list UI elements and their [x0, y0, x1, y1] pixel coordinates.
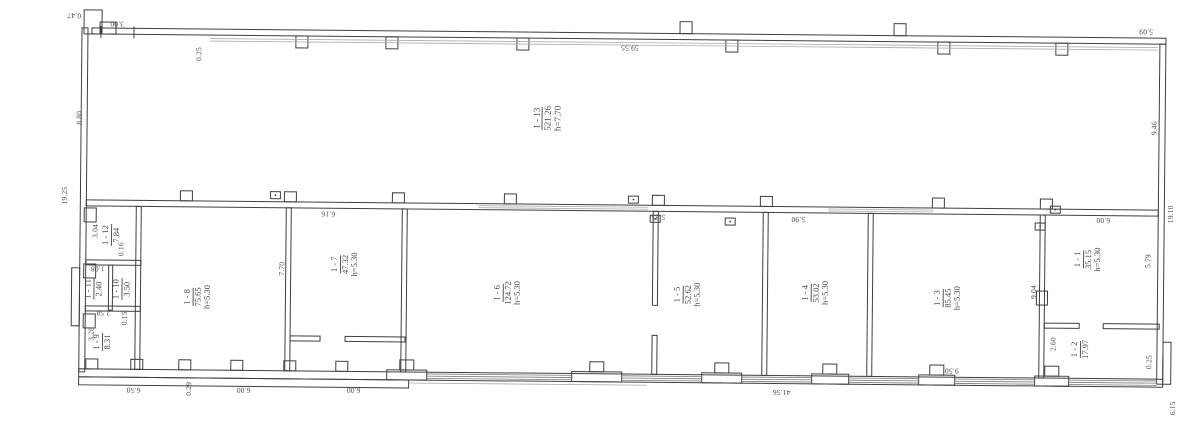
room-height: h=5.30 [203, 285, 213, 309]
dim-label: 6.15 [1168, 401, 1177, 415]
room-height: h=5.30 [821, 281, 831, 305]
room-label-1-4: 1 - 4 53.02 h=5.30 [801, 281, 831, 305]
dim-label: 6.00 [1096, 216, 1110, 225]
room-label-1-6: 1 - 6 124.72 h=5.30 [493, 281, 523, 305]
dim-label: 6.50 [127, 386, 141, 395]
room-label-1-10: 1 - 10 3.50 [111, 278, 131, 300]
room-height: h=5.30 [953, 286, 963, 310]
dim-label: 9.46 [1150, 121, 1159, 135]
dim-label: 0.25 [1144, 355, 1153, 369]
room-label-1-2: 1 - 2 17.97 [1070, 340, 1090, 359]
room-label-1-5: 1 - 5 52.62 h=5.30 [673, 283, 703, 307]
dim-label: 5.90 [791, 215, 805, 224]
dim-label: 3.00 [110, 20, 124, 29]
dim-label: 2.58 [96, 308, 110, 317]
dim-label: 9.04 [1029, 285, 1038, 299]
room-number: 1 - 13 [531, 107, 542, 130]
dim-label: 6.00 [347, 386, 361, 395]
room-height: h=5.30 [513, 281, 523, 305]
room-label-1-8: 1 - 8 75.65 h=5.30 [183, 285, 213, 309]
room-area: 3.50 [122, 282, 132, 297]
room-area: 8.31 [102, 335, 112, 350]
dim-label: 0.29 [184, 382, 193, 396]
room-height: h=5.30 [693, 283, 703, 307]
room-label-1-3: 1 - 3 85.45 h=5.30 [933, 286, 963, 310]
room-label-1-7: 1 - 7 47.32 h=5.30 [330, 252, 360, 276]
dim-label: 0.16 [116, 242, 125, 256]
dim-label: 19.10 [1166, 205, 1175, 223]
dim-label: 0.25 [194, 47, 203, 61]
room-area: 17.97 [1080, 340, 1090, 359]
room-height: h=5.30 [350, 252, 360, 276]
floor-plan-sheet: 1 - 13 521.26 h=7.70 1 - 8 75.65 h=5.30 … [0, 0, 1200, 433]
dim-label: 6.16 [321, 210, 335, 219]
dim-label: 5.09 [1139, 27, 1153, 36]
dim-label: 9.50 [945, 367, 959, 376]
dim-label: 3.04 [91, 224, 100, 238]
dim-label: 2.60 [1048, 337, 1057, 351]
room-label-1-1: 1 - 1 35.15 h=5.30 [1073, 247, 1103, 271]
room-label-1-11: 1 - 11 2.40 [83, 278, 103, 300]
floor-plan: 1 - 13 521.26 h=7.70 1 - 8 75.65 h=5.30 … [0, 0, 1200, 433]
dim-label: 8.80 [75, 111, 84, 125]
dim-label: 5.79 [1143, 254, 1152, 268]
floor-plan-drawing [0, 0, 1200, 433]
interior-walls [83, 200, 1161, 379]
dim-label: 3.28 [87, 327, 96, 341]
room-height: h=5.30 [1093, 248, 1103, 272]
dim-label: 1.08 [91, 264, 105, 273]
dim-label: 41.56 [773, 388, 791, 397]
room-area: 7.84 [111, 228, 121, 243]
dim-label: 6.00 [237, 386, 251, 395]
dim-label: 0.47 [67, 11, 81, 20]
dim-label: 59.55 [621, 44, 639, 53]
dim-label: 19.25 [60, 187, 69, 205]
room-label-1-13: 1 - 13 521.26 h=7.70 [531, 105, 562, 131]
dim-label: 0.15 [120, 311, 129, 325]
outer-walls [71, 10, 1175, 396]
room-area: 2.40 [94, 282, 104, 297]
dim-label: 7.70 [277, 262, 286, 276]
room-area: 521.26 [543, 106, 553, 131]
room-height: h=7.70 [553, 106, 563, 131]
dim-label: 5.85 [651, 213, 665, 222]
